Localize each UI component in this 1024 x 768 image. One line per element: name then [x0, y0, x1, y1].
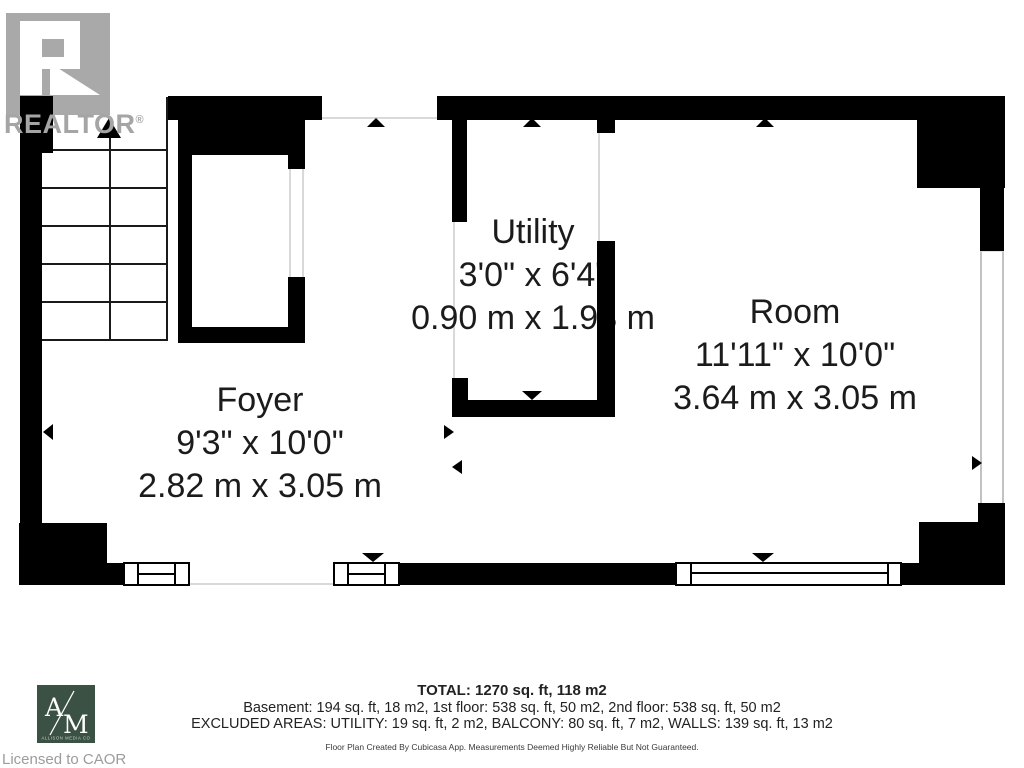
- entry-opening-line: [190, 583, 333, 585]
- stair-stringer: [166, 97, 168, 341]
- stair-tread: [42, 339, 168, 341]
- room-dims-imperial: 3'0" x 6'4": [408, 254, 658, 297]
- window-mullion: [887, 564, 889, 584]
- realtor-wordmark: REALTOR®: [4, 109, 144, 140]
- utility-wall: [597, 241, 615, 417]
- window-pane-line: [138, 573, 175, 575]
- room-name: Foyer: [85, 379, 435, 422]
- utility-wall: [452, 400, 615, 417]
- room-label-foyer: Foyer 9'3" x 10'0" 2.82 m x 3.05 m: [85, 379, 435, 508]
- wall-segment: [437, 96, 919, 120]
- opening-marker-left-icon: [43, 424, 53, 440]
- total-area-text: TOTAL: 1270 sq. ft, 118 m2: [0, 682, 1024, 700]
- window: [675, 562, 902, 586]
- balcony-window: [980, 251, 1004, 505]
- floor-areas-text: Basement: 194 sq. ft, 18 m2, 1st floor: …: [0, 700, 1024, 716]
- closet-wall: [178, 327, 305, 343]
- stair-tread: [42, 301, 168, 303]
- opening-marker-right-icon: [444, 425, 454, 439]
- excluded-areas-text: EXCLUDED AREAS: UTILITY: 19 sq. ft, 2 m2…: [0, 716, 1024, 732]
- disclaimer-text: Floor Plan Created By Cubicasa App. Meas…: [0, 742, 1024, 752]
- door-opening-line: [289, 169, 291, 277]
- utility-wall: [597, 120, 615, 133]
- license-text: Licensed to CAOR: [2, 751, 126, 768]
- room-dims-metric: 0.90 m x 1.93 m: [408, 297, 658, 340]
- room-name: Room: [645, 291, 945, 334]
- closet-wall: [178, 120, 305, 155]
- opening-marker-right-icon: [972, 456, 982, 470]
- utility-wall: [452, 120, 467, 222]
- wall-segment: [917, 96, 1005, 188]
- opening-marker-down-icon: [752, 553, 774, 562]
- opening-marker-down-icon: [522, 391, 542, 400]
- room-label-utility: Utility 3'0" x 6'4" 0.90 m x 1.93 m: [408, 211, 658, 340]
- stair-tread: [42, 187, 168, 189]
- room-dims-imperial: 9'3" x 10'0": [85, 422, 435, 465]
- wall-segment: [980, 188, 1004, 251]
- area-summary: TOTAL: 1270 sq. ft, 118 m2 Basement: 194…: [0, 682, 1024, 752]
- door-opening-line: [302, 169, 304, 277]
- svg-text:ALLISON MEDIA CO: ALLISON MEDIA CO: [42, 736, 91, 741]
- utility-wall: [452, 378, 468, 402]
- opening-marker-up-icon: [367, 118, 385, 127]
- wall-segment: [168, 96, 322, 120]
- window-mullion: [690, 564, 692, 584]
- window: [333, 562, 400, 586]
- wall-segment: [978, 503, 1005, 523]
- wall-segment: [902, 563, 940, 585]
- stair-tread: [42, 149, 168, 151]
- room-label-room: Room 11'11" x 10'0" 3.64 m x 3.05 m: [645, 291, 945, 420]
- wall-segment: [20, 153, 42, 523]
- opening-marker-down-icon: [362, 553, 384, 562]
- stair-tread: [42, 225, 168, 227]
- closet-wall: [288, 155, 305, 169]
- window: [123, 562, 190, 586]
- room-dims-metric: 3.64 m x 3.05 m: [645, 377, 945, 420]
- closet-wall: [178, 155, 192, 343]
- allison-media-logo-icon: A M ALLISON MEDIA CO: [37, 685, 95, 748]
- opening-marker-up-icon: [756, 118, 774, 127]
- room-dims-metric: 2.82 m x 3.05 m: [85, 465, 435, 508]
- opening-marker-left-icon: [452, 460, 462, 474]
- closet-wall: [288, 277, 305, 327]
- registered-mark: ®: [136, 114, 145, 126]
- wall-segment: [400, 563, 675, 585]
- room-name: Utility: [408, 211, 658, 254]
- window-pane-line: [691, 572, 888, 574]
- svg-text:A: A: [44, 693, 64, 722]
- window-pane-line: [348, 573, 385, 575]
- stair-tread: [42, 263, 168, 265]
- wall-segment: [19, 523, 107, 585]
- room-dims-imperial: 11'11" x 10'0": [645, 334, 945, 377]
- stair-direction-line: [109, 136, 111, 341]
- realtor-wordmark-text: REALTOR: [4, 109, 136, 139]
- floor-plan: Foyer 9'3" x 10'0" 2.82 m x 3.05 m Utili…: [0, 0, 1024, 768]
- opening-marker-up-icon: [523, 118, 541, 127]
